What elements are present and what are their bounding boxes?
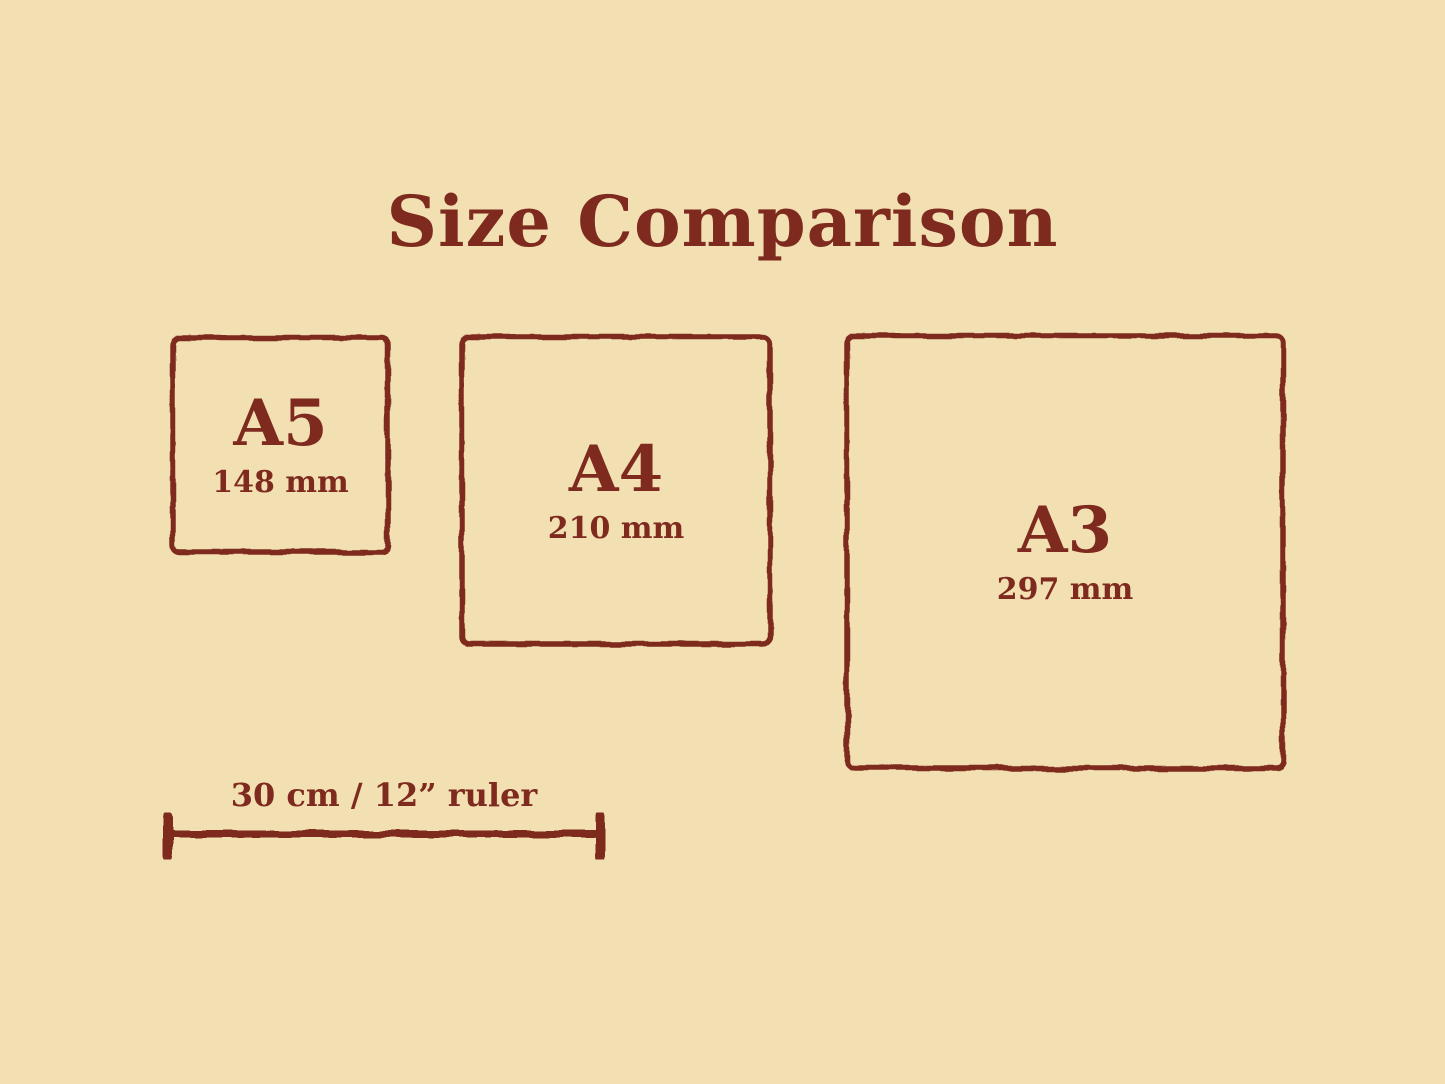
size-box-a3: A3 297 mm — [842, 331, 1288, 773]
a4-label-group: A4 210 mm — [548, 438, 685, 544]
a5-label-group: A5 148 mm — [212, 392, 349, 498]
size-label-a3: A3 — [1018, 499, 1112, 563]
size-box-a4: A4 210 mm — [457, 332, 775, 649]
size-dimension-a3: 297 mm — [997, 575, 1134, 605]
size-dimension-a4: 210 mm — [548, 514, 685, 544]
size-label-a4: A4 — [569, 438, 663, 502]
size-dimension-a5: 148 mm — [212, 468, 349, 498]
a3-label-group: A3 297 mm — [997, 499, 1134, 605]
ruler-graphic — [158, 806, 610, 864]
page-title: Size Comparison — [0, 183, 1445, 260]
size-label-a5: A5 — [233, 392, 327, 456]
size-box-a5: A5 148 mm — [168, 333, 393, 557]
size-comparison-diagram: Size Comparison A5 148 mm A4 210 mm — [0, 0, 1445, 1084]
